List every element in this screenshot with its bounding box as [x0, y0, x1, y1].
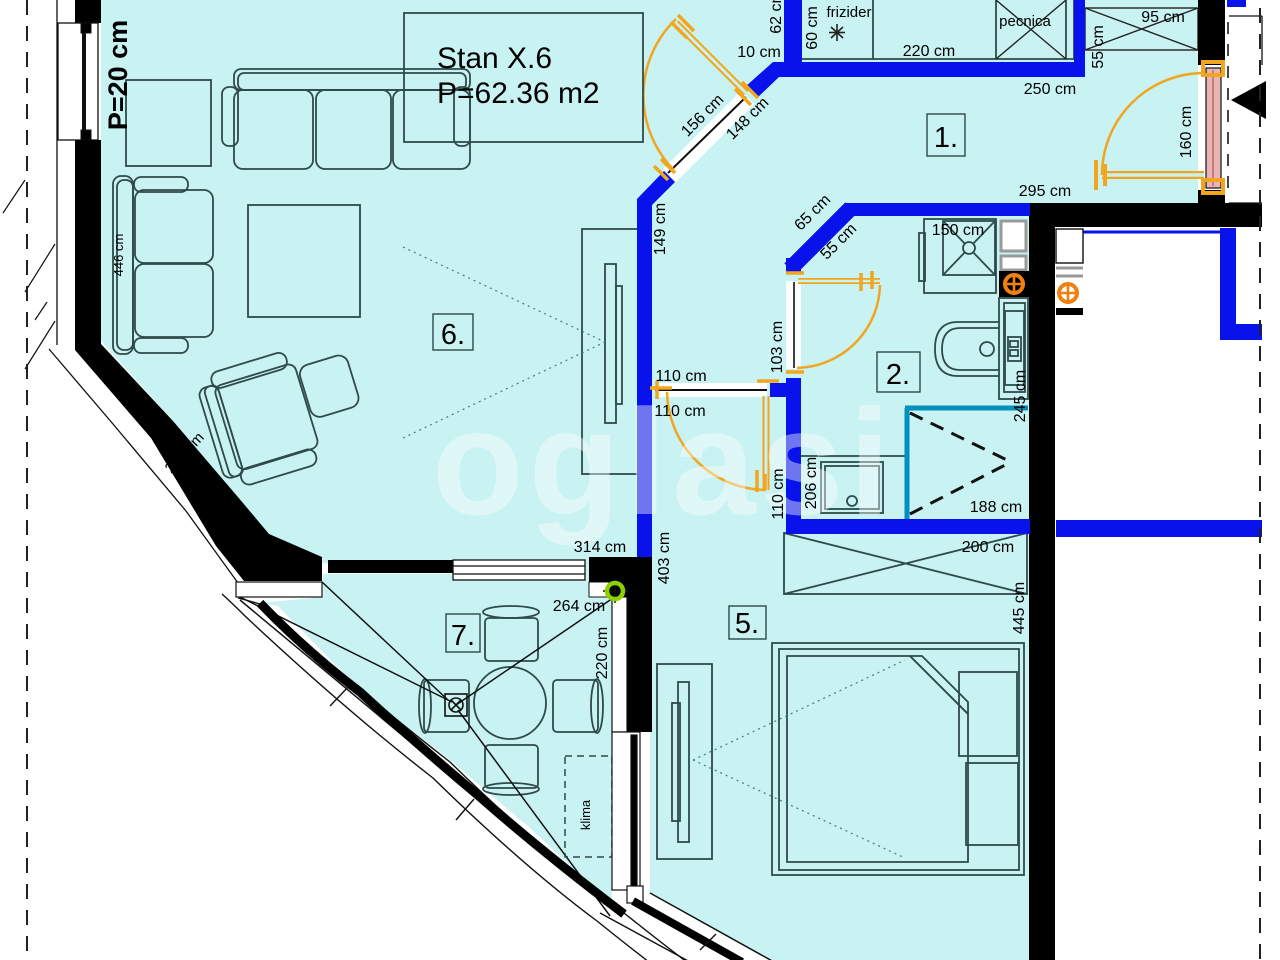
svg-text:200 cm: 200 cm [962, 539, 1014, 556]
svg-text:pecnica: pecnica [999, 13, 1051, 30]
svg-text:Stan X.6: Stan X.6 [437, 42, 552, 75]
svg-text:188 cm: 188 cm [970, 499, 1022, 516]
svg-text:110 cm: 110 cm [655, 368, 706, 385]
svg-text:264 cm: 264 cm [553, 598, 605, 615]
svg-text:P=20 cm: P=20 cm [103, 20, 133, 130]
svg-text:62 cm: 62 cm [768, 0, 785, 34]
svg-text:55 cm: 55 cm [1090, 25, 1107, 69]
svg-text:295 cm: 295 cm [1019, 183, 1071, 200]
svg-text:314 cm: 314 cm [574, 539, 626, 556]
svg-text:klima: klima [578, 799, 593, 830]
svg-text:220 cm: 220 cm [594, 627, 611, 679]
svg-text:2.: 2. [886, 359, 910, 391]
svg-text:10 cm: 10 cm [737, 44, 781, 61]
svg-text:403 cm: 403 cm [656, 532, 673, 584]
svg-text:160 cm: 160 cm [1178, 106, 1195, 158]
svg-text:5.: 5. [735, 608, 759, 640]
svg-text:150 cm: 150 cm [932, 222, 984, 239]
svg-text:95 cm: 95 cm [1141, 9, 1185, 26]
svg-text:P=62.36 m2: P=62.36 m2 [437, 77, 600, 110]
svg-text:245 cm: 245 cm [1012, 370, 1029, 422]
svg-text:60 cm: 60 cm [804, 6, 821, 50]
svg-text:445 cm: 445 cm [1011, 582, 1028, 634]
svg-text:250 cm: 250 cm [1024, 81, 1076, 98]
svg-text:7.: 7. [451, 620, 475, 652]
svg-text:1.: 1. [934, 122, 958, 154]
svg-text:149 cm: 149 cm [652, 203, 669, 255]
svg-text:110 cm: 110 cm [770, 468, 787, 519]
svg-text:446 cm: 446 cm [111, 234, 126, 277]
svg-text:103 cm: 103 cm [769, 321, 786, 373]
svg-text:frizider: frizider [826, 4, 871, 21]
svg-text:110 cm: 110 cm [654, 403, 705, 420]
svg-text:6.: 6. [441, 319, 465, 351]
svg-text:206 cm: 206 cm [803, 457, 820, 509]
svg-text:220 cm: 220 cm [903, 43, 955, 60]
